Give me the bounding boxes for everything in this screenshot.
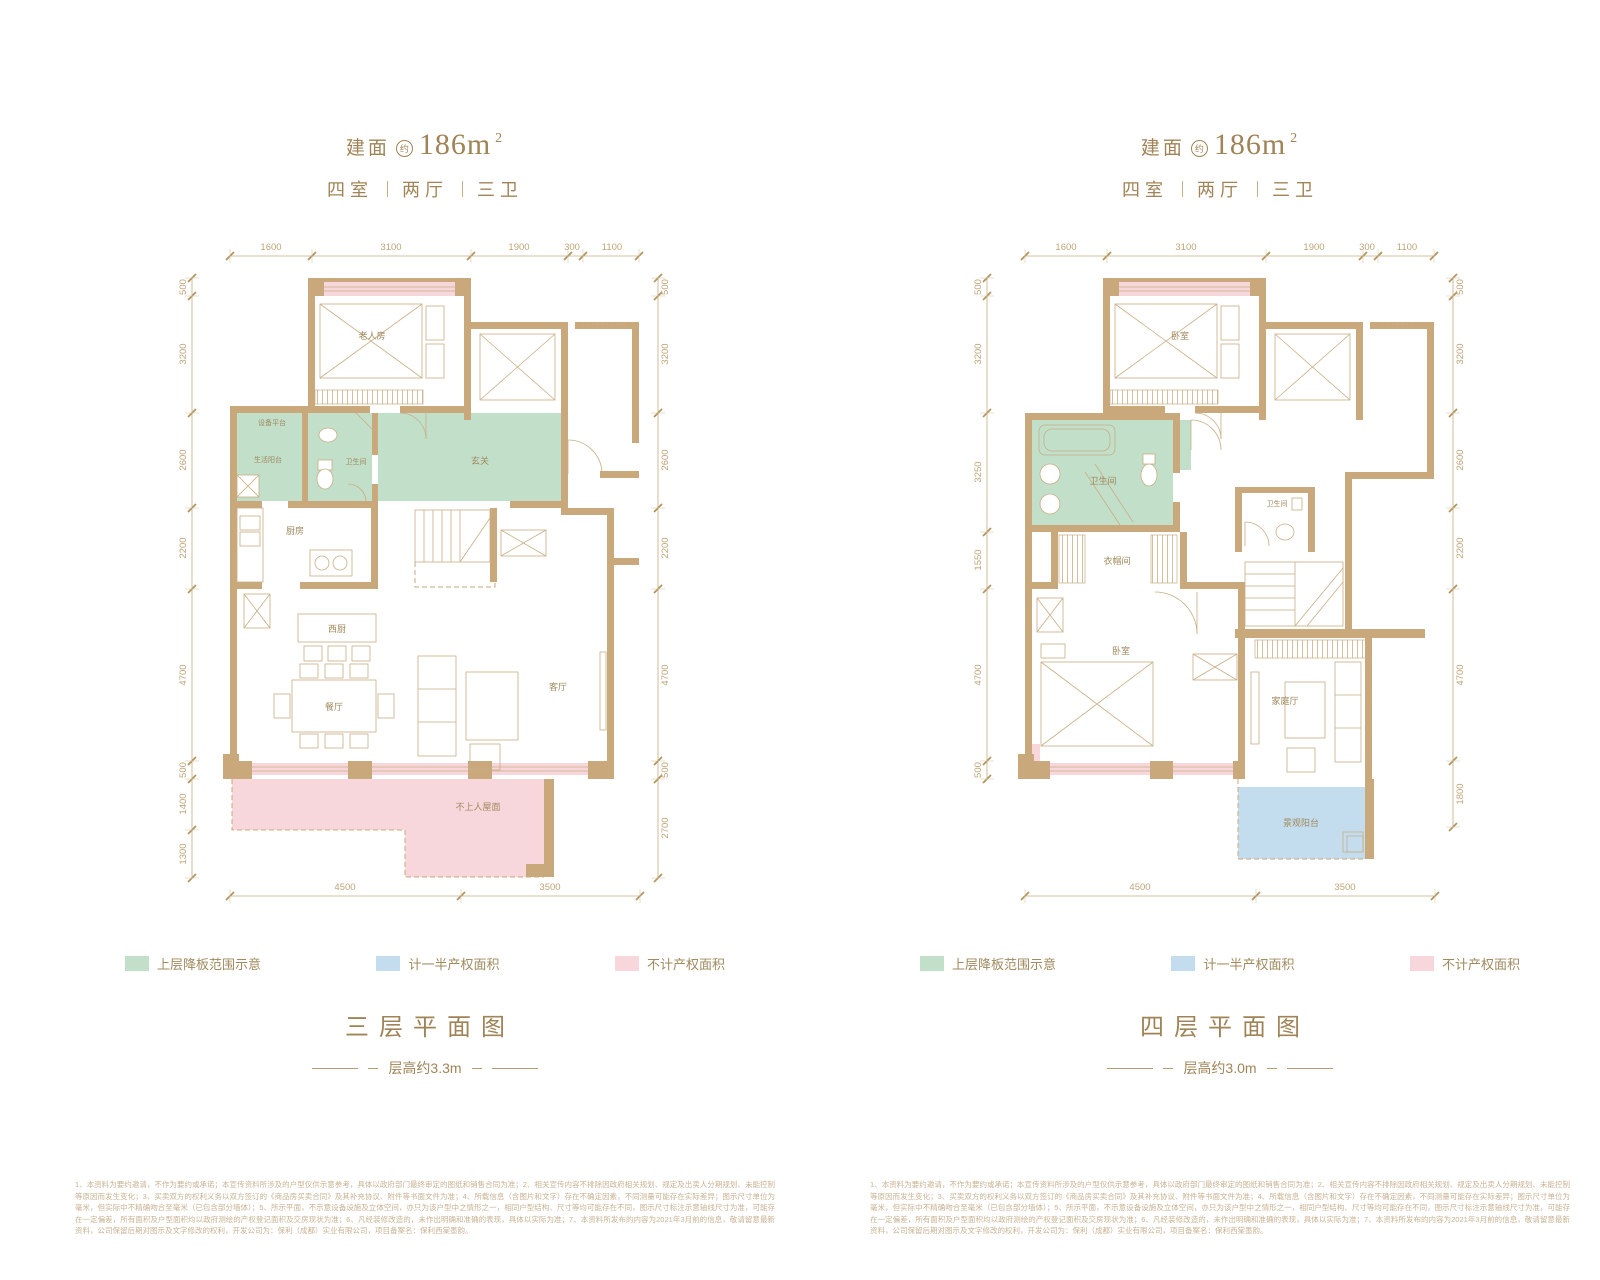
room-label: 景观阳台 bbox=[1283, 817, 1319, 828]
dim-right: 2700 bbox=[660, 817, 671, 838]
floor-height-text: 层高约3.0m bbox=[1183, 1058, 1256, 1078]
room-label: 客厅 bbox=[549, 681, 567, 692]
decor-line bbox=[1163, 1068, 1173, 1069]
legend-label: 上层降板范围示意 bbox=[952, 954, 1056, 973]
legend-label: 不计产权面积 bbox=[1442, 954, 1520, 973]
room-label: 衣帽间 bbox=[1103, 555, 1130, 566]
legend-swatch-green bbox=[920, 956, 944, 971]
dim-bottom: 4500 bbox=[334, 882, 355, 893]
panel-floor3: 建面 约 186m 2 四室 两厅 三卫 1600 3100 1900 300 … bbox=[60, 0, 790, 1280]
room-label: 老人房 bbox=[358, 330, 385, 341]
room-label: 西厨 bbox=[328, 624, 346, 634]
plan-header: 建面 约 186m 2 四室 两厅 三卫 bbox=[1122, 128, 1318, 202]
plan-header: 建面 约 186m 2 四室 两厅 三卫 bbox=[327, 128, 523, 202]
dim-top: 300 bbox=[1359, 242, 1375, 253]
dim-top: 1100 bbox=[1397, 242, 1417, 253]
legend-label: 不计产权面积 bbox=[647, 954, 725, 973]
area-superscript: 2 bbox=[495, 131, 502, 147]
room-label: 家庭厅 bbox=[1271, 695, 1298, 706]
panel-floor4: 建面 约 186m 2 四室 两厅 三卫 1600 3100 1900 300 … bbox=[855, 0, 1585, 1280]
disclaimer-text: 1、本资料为要约邀请，不作为要约或承诺；本宣传资料所涉及的户型仅供示意参考，具体… bbox=[75, 1179, 775, 1237]
legend: 上层降板范围示意 计一半产权面积 不计产权面积 bbox=[125, 954, 725, 973]
dim-left: 2200 bbox=[178, 537, 189, 558]
floor-height-note: 层高约3.0m bbox=[1107, 1058, 1332, 1078]
room-label: 卫生间 bbox=[1089, 475, 1116, 486]
legend-item: 不计产权面积 bbox=[615, 954, 725, 973]
dim-left: 3200 bbox=[178, 343, 189, 364]
room-label: 餐厅 bbox=[325, 701, 343, 712]
dim-top: 1600 bbox=[1055, 242, 1076, 253]
floorplan-4f: 1600 3100 1900 300 1100 500 3200 3250 15… bbox=[955, 232, 1485, 932]
dim-top: 3100 bbox=[380, 242, 401, 253]
legend-swatch-pink bbox=[615, 956, 639, 971]
dim-left: 4700 bbox=[973, 664, 984, 685]
area-superscript: 2 bbox=[1290, 131, 1297, 147]
dim-left: 2600 bbox=[178, 449, 189, 470]
area-prefix: 建面 bbox=[346, 133, 390, 160]
dim-top: 1600 bbox=[260, 242, 281, 253]
separator bbox=[462, 181, 463, 197]
approx-circle-icon: 约 bbox=[1191, 140, 1208, 157]
decor-line bbox=[368, 1068, 378, 1069]
dim-left: 3200 bbox=[973, 343, 984, 364]
dim-top: 300 bbox=[564, 242, 580, 253]
dim-top: 1100 bbox=[602, 242, 622, 253]
dim-top: 1900 bbox=[508, 242, 529, 253]
separator bbox=[387, 181, 388, 197]
legend-label: 计一半产权面积 bbox=[1203, 954, 1294, 973]
legend-item: 计一半产权面积 bbox=[376, 954, 499, 973]
legend-item: 上层降板范围示意 bbox=[920, 954, 1056, 973]
area-value: 186m bbox=[419, 128, 491, 162]
dim-left: 1300 bbox=[178, 843, 189, 864]
dim-left: 3250 bbox=[973, 461, 984, 482]
dim-top: 3100 bbox=[1175, 242, 1196, 253]
dim-right: 3200 bbox=[1455, 343, 1466, 364]
dim-right: 500 bbox=[1455, 279, 1466, 295]
decor-line bbox=[1287, 1068, 1333, 1069]
legend-swatch-pink bbox=[1410, 956, 1434, 971]
legend-label: 计一半产权面积 bbox=[408, 954, 499, 973]
dim-right: 2200 bbox=[660, 537, 671, 558]
floor-height-note: 层高约3.3m bbox=[312, 1058, 537, 1078]
halls-count: 两厅 bbox=[402, 176, 448, 202]
legend-swatch-blue bbox=[376, 956, 400, 971]
disclaimer-text: 1、本资料为要约邀请，不作为要约或承诺；本宣传资料所涉及的户型仅供示意参考，具体… bbox=[870, 1179, 1570, 1237]
dim-bottom: 3500 bbox=[1334, 882, 1355, 893]
room-label: 生活阳台 bbox=[254, 455, 282, 464]
dim-right: 2600 bbox=[660, 449, 671, 470]
dim-right: 2600 bbox=[1455, 449, 1466, 470]
room-label: 玄关 bbox=[471, 455, 489, 466]
legend-item: 计一半产权面积 bbox=[1171, 954, 1294, 973]
dim-right: 4700 bbox=[660, 664, 671, 685]
separator bbox=[1182, 181, 1183, 197]
room-label: 不上人屋面 bbox=[455, 802, 500, 812]
dim-top: 1900 bbox=[1303, 242, 1324, 253]
dim-left: 4700 bbox=[178, 664, 189, 685]
legend-item: 上层降板范围示意 bbox=[125, 954, 261, 973]
dim-right: 1800 bbox=[1455, 783, 1466, 804]
room-label: 卫生间 bbox=[346, 457, 367, 466]
legend-swatch-green bbox=[125, 956, 149, 971]
dim-left: 1400 bbox=[178, 793, 189, 814]
legend-item: 不计产权面积 bbox=[1410, 954, 1520, 973]
decor-line bbox=[1267, 1068, 1277, 1069]
decor-line bbox=[472, 1068, 482, 1069]
dim-right: 2200 bbox=[1455, 537, 1466, 558]
room-label: 设备平台 bbox=[258, 418, 286, 427]
dim-bottom: 4500 bbox=[1129, 882, 1150, 893]
dim-right: 500 bbox=[660, 762, 671, 778]
dim-left: 500 bbox=[178, 762, 189, 778]
decor-line bbox=[1107, 1068, 1153, 1069]
halls-count: 两厅 bbox=[1197, 176, 1243, 202]
room-label: 卧室 bbox=[1171, 330, 1189, 341]
dim-left: 500 bbox=[178, 279, 189, 295]
dim-right: 4700 bbox=[1455, 664, 1466, 685]
room-label: 厨房 bbox=[286, 525, 304, 536]
area-value: 186m bbox=[1214, 128, 1286, 162]
room-label: 卫生间 bbox=[1267, 499, 1288, 508]
approx-circle-icon: 约 bbox=[396, 140, 413, 157]
baths-count: 三卫 bbox=[1272, 176, 1318, 202]
floor-height-text: 层高约3.3m bbox=[388, 1058, 461, 1078]
rooms-count: 四室 bbox=[1122, 176, 1168, 202]
baths-count: 三卫 bbox=[477, 176, 523, 202]
dim-right: 500 bbox=[660, 279, 671, 295]
dim-bottom: 3500 bbox=[539, 882, 560, 893]
dim-left: 500 bbox=[973, 279, 984, 295]
decor-line bbox=[492, 1068, 538, 1069]
legend: 上层降板范围示意 计一半产权面积 不计产权面积 bbox=[920, 954, 1520, 973]
dim-left: 1550 bbox=[973, 549, 984, 570]
floorplan-3f: 1600 3100 1900 300 1100 500 3200 2600 22… bbox=[160, 232, 690, 932]
decor-line bbox=[312, 1068, 358, 1069]
separator bbox=[1257, 181, 1258, 197]
legend-swatch-blue bbox=[1171, 956, 1195, 971]
room-label: 卧室 bbox=[1112, 645, 1130, 656]
dim-right: 3200 bbox=[660, 343, 671, 364]
area-prefix: 建面 bbox=[1141, 133, 1185, 160]
dim-left: 500 bbox=[973, 762, 984, 778]
legend-label: 上层降板范围示意 bbox=[157, 954, 261, 973]
rooms-count: 四室 bbox=[327, 176, 373, 202]
plan-caption: 三层平面图 bbox=[335, 1007, 515, 1042]
plan-caption: 四层平面图 bbox=[1130, 1007, 1310, 1042]
